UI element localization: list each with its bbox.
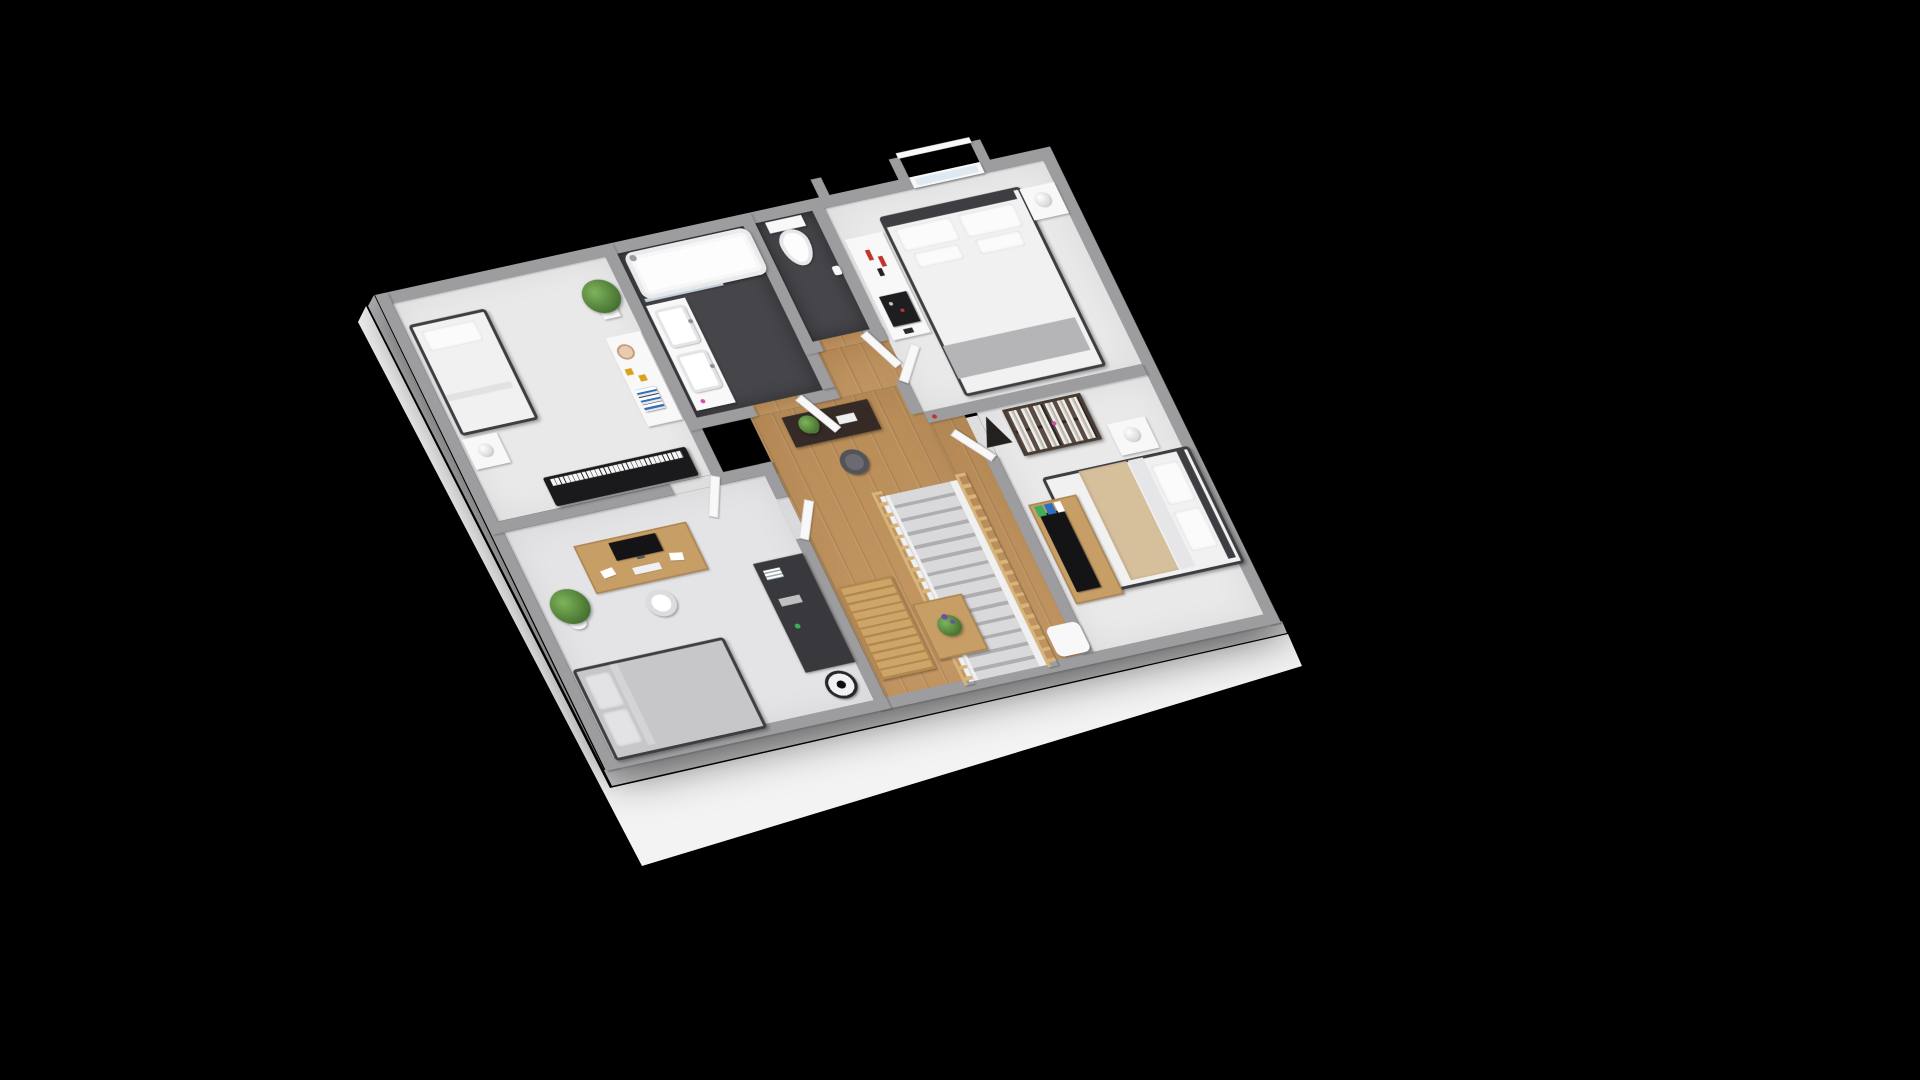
paper	[669, 552, 685, 560]
remote	[903, 327, 914, 334]
grey-bed-runner	[943, 317, 1091, 379]
red-candle	[878, 256, 887, 267]
bottle	[888, 302, 893, 306]
flower-basket	[933, 613, 965, 638]
bottle	[900, 308, 905, 312]
duvet-fold	[445, 381, 513, 401]
console-decor	[836, 412, 858, 424]
red-candle	[865, 249, 874, 260]
keyboard	[632, 562, 662, 575]
bedroom-top-left-door	[708, 475, 720, 518]
books-decor	[763, 567, 784, 580]
toothbrush-cup	[700, 399, 706, 404]
pillow	[421, 320, 484, 352]
floorplan-scene	[0, 0, 1920, 1080]
paper	[600, 567, 617, 579]
monitor-stand	[636, 555, 645, 559]
green-decor	[794, 623, 802, 629]
runner-decor	[778, 595, 803, 607]
dark-candle	[877, 268, 885, 276]
